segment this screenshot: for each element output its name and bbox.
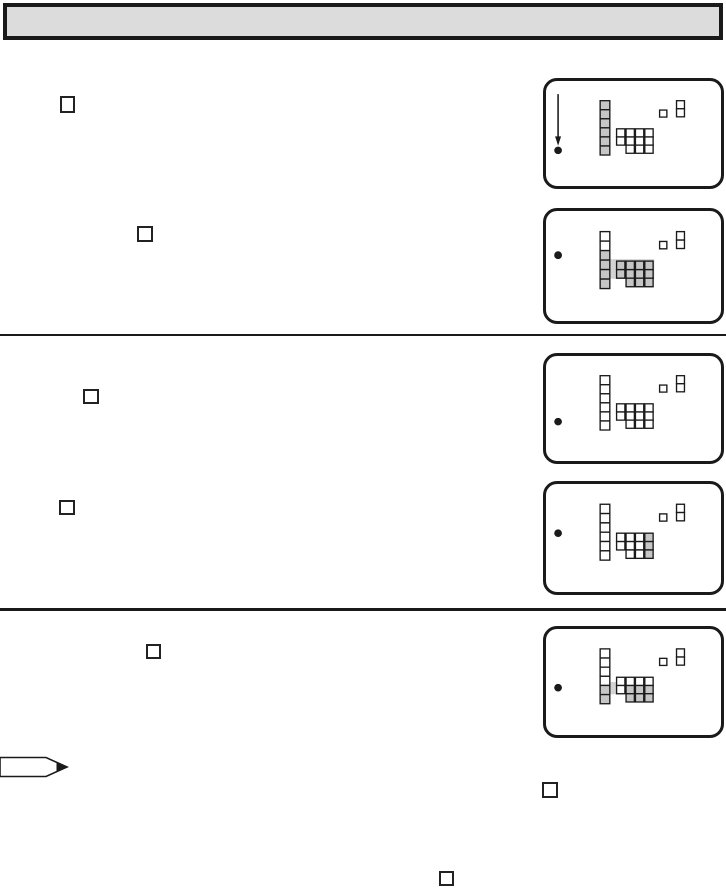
osd-screen-panel <box>543 78 724 189</box>
step-number-box <box>439 871 454 886</box>
step-number-box <box>137 226 153 242</box>
osd-screen-panel <box>543 481 724 595</box>
step-number-box <box>542 782 558 798</box>
note-pencil-icon <box>0 754 72 780</box>
page-header-banner <box>3 3 723 40</box>
section-divider <box>0 608 726 611</box>
manual-page <box>0 0 726 888</box>
osd-screen-panel <box>543 353 724 464</box>
step-number-box <box>83 389 99 404</box>
step-number-box <box>60 96 75 113</box>
step-number-box <box>146 644 161 659</box>
osd-screen-panel <box>543 208 724 324</box>
osd-screen-panel <box>543 626 724 738</box>
section-divider <box>0 334 726 336</box>
step-number-box <box>59 500 75 515</box>
